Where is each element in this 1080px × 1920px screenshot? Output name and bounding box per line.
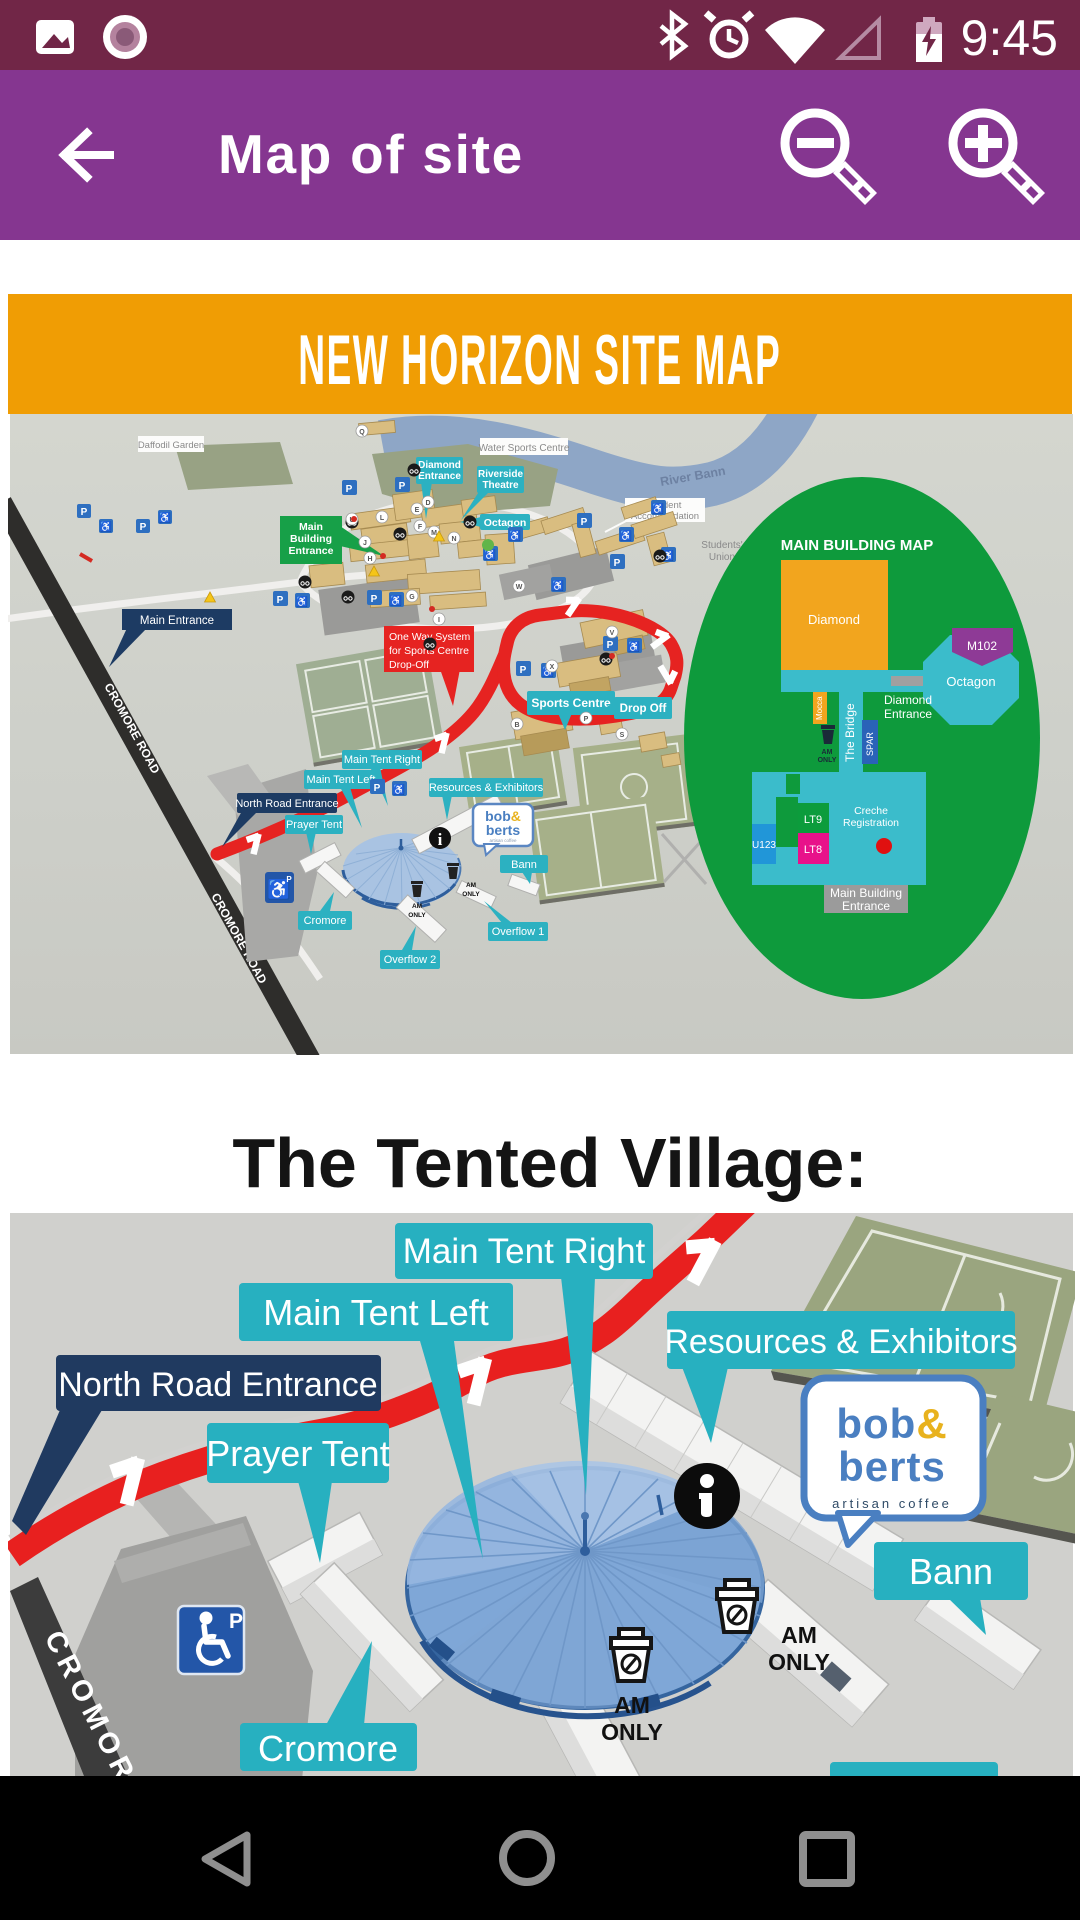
svg-text:ONLY: ONLY [601, 1719, 663, 1745]
svg-text:P: P [346, 484, 353, 495]
svg-text:LT9: LT9 [804, 814, 822, 826]
svg-text:Entrance: Entrance [418, 471, 461, 482]
svg-text:Entrance: Entrance [289, 545, 334, 557]
svg-text:U123: U123 [752, 840, 776, 851]
svg-text:Main Tent Right: Main Tent Right [344, 754, 420, 766]
svg-text:AM: AM [412, 903, 422, 910]
svg-text:Entrance: Entrance [884, 707, 932, 721]
svg-text:P: P [371, 594, 378, 605]
svg-text:P: P [374, 783, 381, 794]
svg-text:N: N [451, 536, 456, 543]
svg-text:i: i [438, 830, 443, 849]
svg-text:♿: ♿ [100, 520, 112, 533]
svg-text:J: J [363, 540, 367, 547]
svg-text:Diamond: Diamond [884, 693, 932, 707]
svg-text:ONLY: ONLY [818, 757, 837, 764]
svg-text:P: P [607, 640, 614, 651]
svg-text:SPAR: SPAR [865, 732, 875, 756]
svg-text:Prayer Tent: Prayer Tent [206, 1433, 389, 1474]
svg-text:♿: ♿ [652, 502, 664, 515]
svg-text:North Road Entrance: North Road Entrance [235, 798, 338, 810]
svg-text:Daffodil Garden: Daffodil Garden [138, 440, 204, 451]
svg-text:ONLY: ONLY [408, 912, 426, 919]
svg-text:♿: ♿ [552, 579, 564, 592]
svg-text:Riverside: Riverside [478, 469, 523, 480]
svg-text:Bann: Bann [909, 1551, 993, 1592]
svg-text:Water Sports Centre: Water Sports Centre [479, 443, 570, 454]
svg-text:P: P [229, 1610, 243, 1633]
svg-text:♿: ♿ [620, 529, 632, 542]
svg-text:G: G [409, 594, 415, 601]
svg-text:Map of site: Map of site [218, 123, 524, 185]
svg-text:P: P [614, 558, 621, 569]
svg-text:Building: Building [290, 533, 332, 545]
svg-text:Cromore: Cromore [304, 915, 347, 927]
svg-text:Sports Centre: Sports Centre [531, 696, 611, 710]
svg-text:D: D [425, 500, 430, 507]
svg-text:♿: ♿ [296, 595, 308, 608]
svg-text:Main Building: Main Building [830, 886, 902, 900]
svg-text:Resources & Exhibitors: Resources & Exhibitors [664, 1323, 1017, 1361]
svg-text:Overflow 2: Overflow 2 [384, 954, 437, 966]
svg-text:Octagon: Octagon [946, 674, 995, 689]
svg-text:AM: AM [781, 1622, 817, 1648]
svg-text:P: P [286, 875, 292, 884]
svg-text:L: L [380, 515, 385, 522]
svg-text:Main Tent Right: Main Tent Right [403, 1232, 646, 1271]
svg-text:Overflow 1: Overflow 1 [492, 926, 545, 938]
svg-text:E: E [415, 507, 420, 514]
svg-text:P: P [520, 665, 527, 676]
svg-text:Registration: Registration [843, 817, 899, 829]
svg-text:AM: AM [466, 882, 476, 889]
svg-text:ONLY: ONLY [768, 1649, 830, 1675]
svg-text:P: P [581, 517, 588, 528]
svg-text:Main Tent Left: Main Tent Left [307, 774, 376, 786]
svg-text:Q: Q [359, 429, 365, 436]
svg-text:Diamond: Diamond [418, 460, 461, 471]
svg-text:Drop Off: Drop Off [620, 703, 667, 715]
svg-text:North Road Entrance: North Road Entrance [58, 1366, 377, 1404]
svg-text:P: P [277, 595, 284, 606]
svg-text:P: P [81, 507, 88, 518]
svg-text:W: W [516, 584, 523, 591]
svg-text:Cromore: Cromore [258, 1728, 398, 1769]
svg-text:♿: ♿ [628, 640, 640, 653]
svg-text:LT8: LT8 [804, 844, 822, 856]
svg-text:F: F [418, 524, 423, 531]
svg-text:artisan coffee: artisan coffee [490, 838, 517, 843]
svg-text:Main: Main [299, 521, 323, 533]
svg-text:S: S [620, 732, 625, 739]
svg-text:AM: AM [822, 749, 833, 756]
svg-text:Entrance: Entrance [842, 899, 890, 913]
svg-text:♿: ♿ [509, 529, 521, 542]
svg-text:Main Tent Left: Main Tent Left [263, 1292, 488, 1333]
svg-text:H: H [367, 556, 372, 563]
svg-text:P: P [399, 481, 406, 492]
svg-text:♿: ♿ [393, 783, 405, 796]
svg-text:I: I [438, 617, 440, 624]
svg-text:B: B [514, 722, 519, 729]
svg-text:Mocca: Mocca [815, 696, 824, 720]
svg-text:berts: berts [838, 1443, 946, 1490]
svg-text:9:45: 9:45 [961, 10, 1058, 66]
svg-text:The Bridge: The Bridge [843, 703, 857, 762]
svg-text:P: P [584, 716, 589, 723]
svg-text:artisan coffee: artisan coffee [832, 1496, 952, 1511]
svg-text:♿: ♿ [390, 594, 402, 607]
svg-text:Drop-Off: Drop-Off [389, 659, 429, 671]
svg-text:Students': Students' [701, 540, 742, 551]
svg-text:Main Entrance: Main Entrance [140, 615, 214, 627]
svg-text:Bann: Bann [511, 859, 537, 871]
svg-text:Prayer Tent: Prayer Tent [286, 819, 342, 831]
svg-text:ONLY: ONLY [462, 891, 480, 898]
svg-text:MAIN BUILDING MAP: MAIN BUILDING MAP [781, 537, 934, 554]
svg-text:M102: M102 [967, 639, 997, 653]
svg-text:Theatre: Theatre [482, 480, 519, 491]
svg-text:Creche: Creche [854, 805, 888, 817]
svg-text:V: V [610, 630, 615, 637]
svg-text:Resources & Exhibitors: Resources & Exhibitors [429, 782, 544, 794]
svg-text:bob&: bob& [836, 1400, 947, 1447]
svg-text:♿: ♿ [159, 511, 171, 524]
svg-text:AM: AM [614, 1692, 650, 1718]
svg-text:Diamond: Diamond [808, 612, 860, 627]
svg-text:P: P [140, 522, 147, 533]
svg-text:X: X [550, 664, 555, 671]
svg-text:berts: berts [486, 822, 520, 838]
